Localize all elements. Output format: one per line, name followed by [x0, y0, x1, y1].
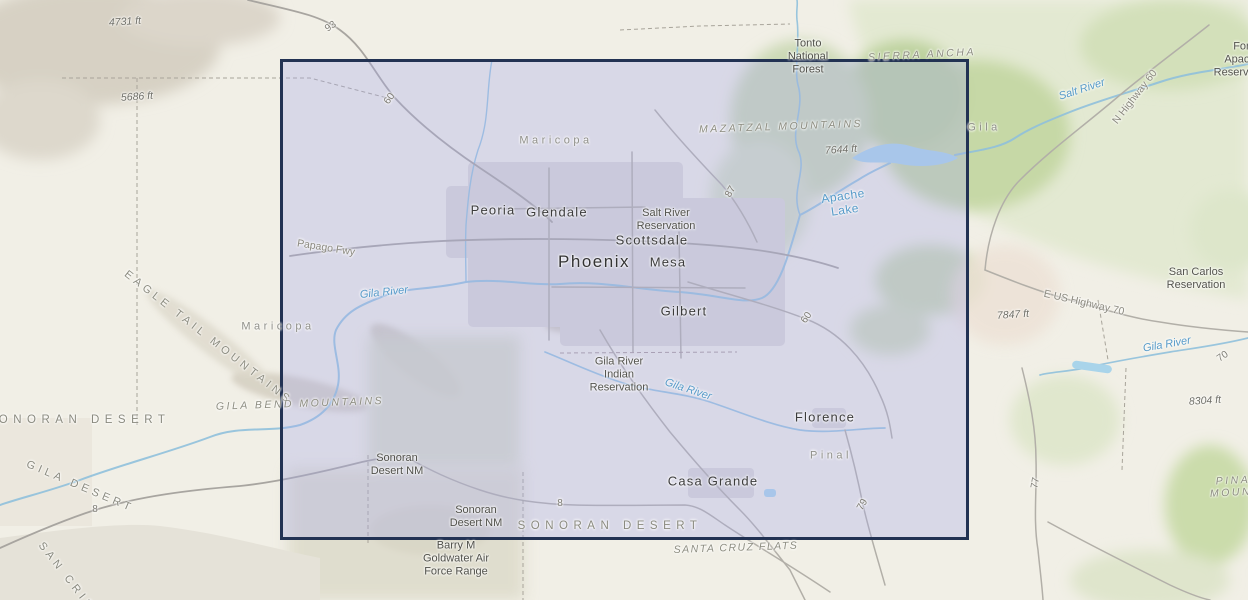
map-canvas[interactable]: 4731 ft93Tonto National ForestSIERRA ANC…: [0, 0, 1248, 600]
selection-box[interactable]: [280, 59, 969, 540]
